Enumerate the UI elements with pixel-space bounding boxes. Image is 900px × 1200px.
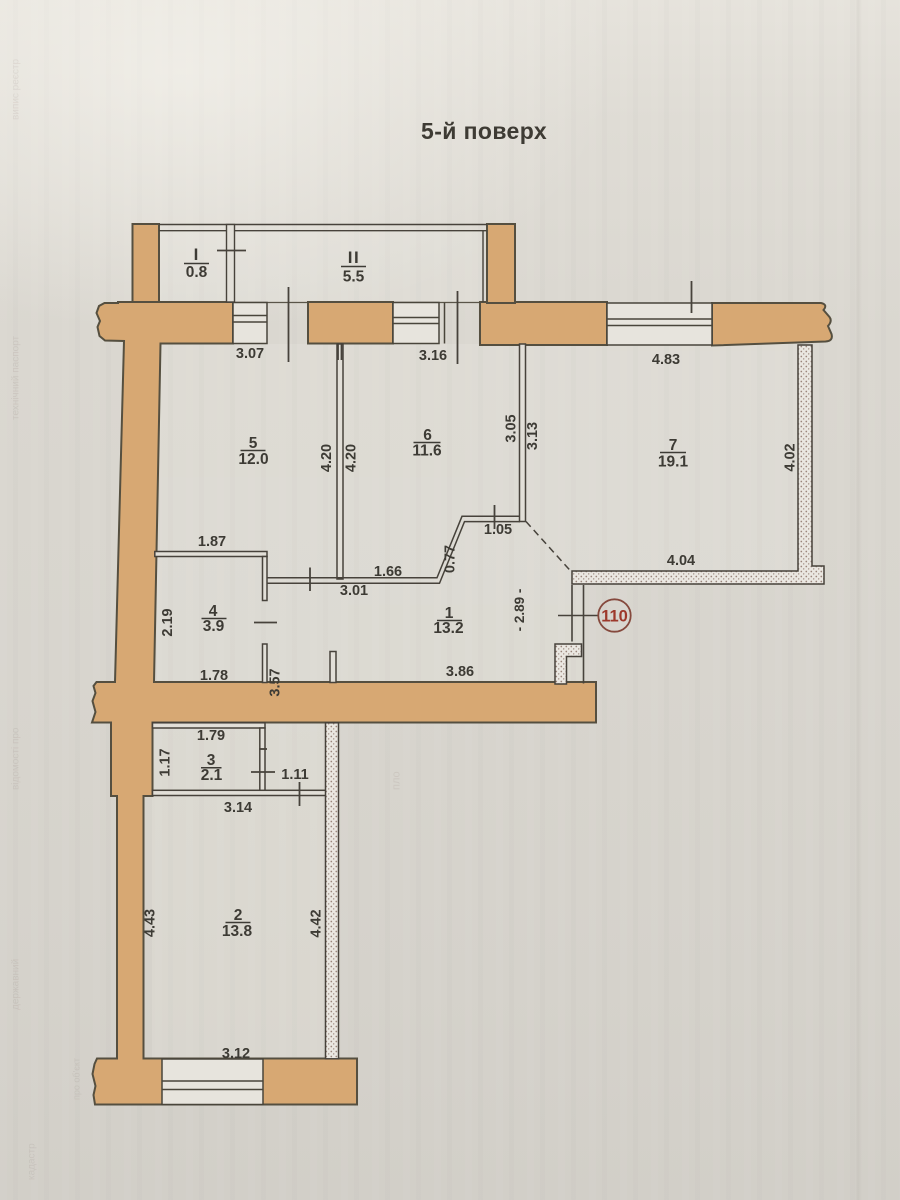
svg-text:пло: пло xyxy=(391,771,403,790)
svg-text:4.20: 4.20 xyxy=(319,444,335,472)
svg-text:випис реєстр: випис реєстр xyxy=(11,59,22,120)
svg-text:2: 2 xyxy=(234,907,243,924)
svg-text:5.5: 5.5 xyxy=(343,269,365,286)
svg-text:1.87: 1.87 xyxy=(198,534,226,550)
svg-text:110: 110 xyxy=(601,608,628,626)
svg-text:4.83: 4.83 xyxy=(652,352,680,368)
svg-text:II: II xyxy=(348,248,360,267)
svg-text:3.13: 3.13 xyxy=(525,422,541,450)
svg-text:4.02: 4.02 xyxy=(783,443,799,471)
svg-text:відомості про: відомості про xyxy=(11,727,22,790)
svg-text:13.2: 13.2 xyxy=(433,620,463,637)
svg-text:11.6: 11.6 xyxy=(412,443,442,460)
svg-text:13.8: 13.8 xyxy=(222,923,253,940)
svg-text:I: I xyxy=(194,245,199,264)
svg-text:0.8: 0.8 xyxy=(186,264,208,281)
svg-text:5: 5 xyxy=(249,435,258,452)
svg-text:3.9: 3.9 xyxy=(203,618,225,635)
svg-text:3.57: 3.57 xyxy=(268,668,284,696)
svg-text:7: 7 xyxy=(669,437,678,454)
svg-text:2.19: 2.19 xyxy=(160,608,176,636)
svg-text:1.17: 1.17 xyxy=(158,748,174,776)
svg-text:4.43: 4.43 xyxy=(143,909,159,937)
svg-text:2.1: 2.1 xyxy=(201,767,223,784)
svg-text:3.14: 3.14 xyxy=(224,800,252,816)
svg-text:3.86: 3.86 xyxy=(446,664,474,680)
svg-text:державний: державний xyxy=(11,959,22,1010)
svg-text:3.16: 3.16 xyxy=(419,348,447,364)
svg-text:кадастр: кадастр xyxy=(27,1143,38,1180)
svg-text:1.79: 1.79 xyxy=(197,728,225,744)
svg-text:1.66: 1.66 xyxy=(374,564,402,580)
svg-text:6: 6 xyxy=(423,427,432,444)
svg-text:про об'єкт: про об'єкт xyxy=(72,1058,82,1100)
svg-text:4.04: 4.04 xyxy=(667,553,695,569)
svg-text:1.05: 1.05 xyxy=(484,522,512,538)
svg-text:1.78: 1.78 xyxy=(200,668,228,684)
svg-text:технічний паспорт: технічний паспорт xyxy=(11,335,22,420)
svg-text:12.0: 12.0 xyxy=(238,451,268,468)
svg-text:4.20: 4.20 xyxy=(344,444,360,472)
svg-text:3.01: 3.01 xyxy=(340,583,368,599)
svg-text:3.05: 3.05 xyxy=(504,414,520,442)
svg-text:1.11: 1.11 xyxy=(281,767,308,783)
svg-text:0.77: 0.77 xyxy=(443,545,459,573)
svg-text:- 2.89 -: - 2.89 - xyxy=(512,589,527,632)
svg-text:3.12: 3.12 xyxy=(222,1046,250,1062)
svg-text:3.07: 3.07 xyxy=(236,346,264,362)
svg-text:5-й поверх: 5-й поверх xyxy=(421,118,547,144)
svg-text:19.1: 19.1 xyxy=(658,454,689,471)
svg-text:4.42: 4.42 xyxy=(309,909,325,937)
